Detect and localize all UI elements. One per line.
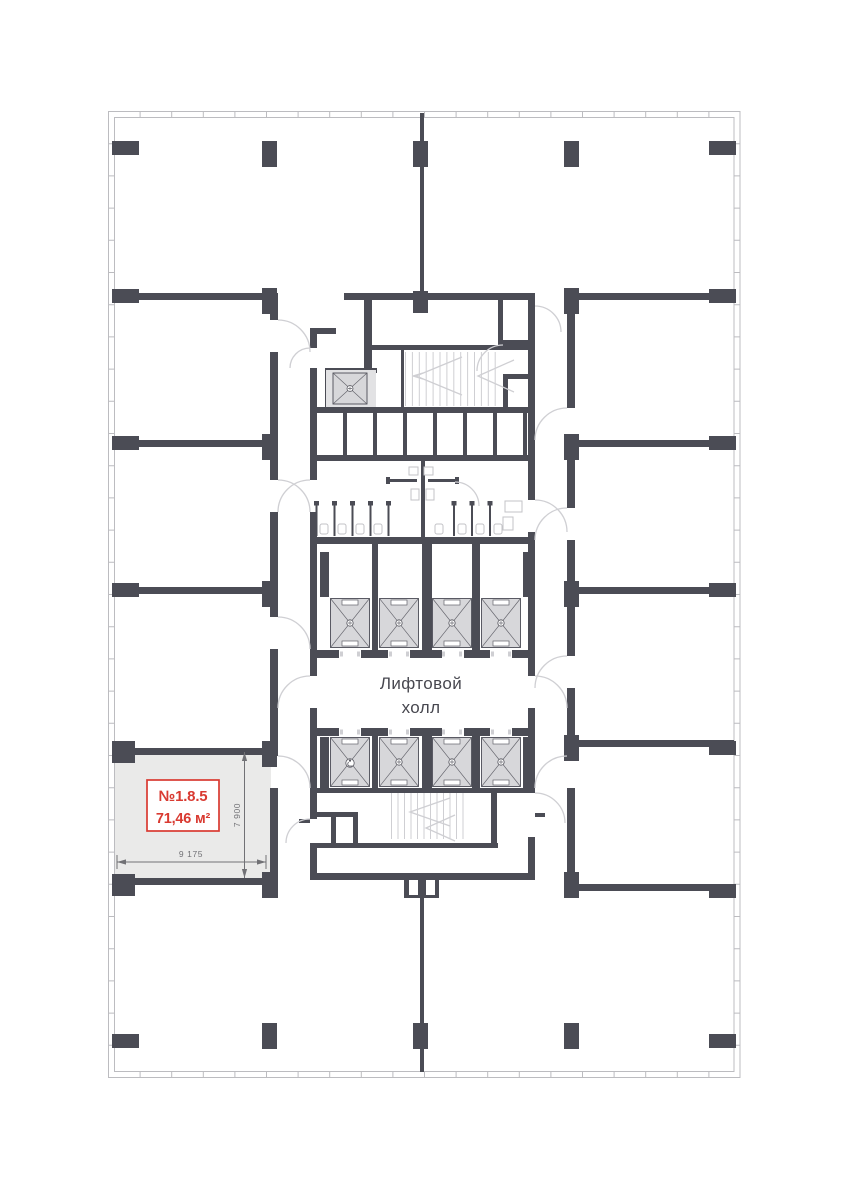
floor-plan: Лифтовой холл №1.8.5 71,46 м² 9 175 7 90… <box>0 0 848 1200</box>
dimension-width-label: 9 175 <box>179 849 203 859</box>
wheelchair-icon <box>346 759 354 767</box>
right-wing-walls <box>567 293 734 898</box>
toilet-icons <box>320 524 502 534</box>
elevator-car <box>380 738 419 787</box>
elevator-hall-line2: холл <box>402 698 441 717</box>
restroom-fixtures <box>314 467 522 536</box>
service-elevator <box>326 370 376 407</box>
elevator-hall-label: Лифтовой холл <box>380 674 462 717</box>
sink-icon <box>409 467 418 475</box>
dimension-height-label: 7 900 <box>232 803 242 827</box>
elevator-hall-line1: Лифтовой <box>380 674 462 693</box>
unit-number: №1.8.5 <box>159 788 208 805</box>
staircase-upper <box>405 357 514 395</box>
counter-icon <box>505 501 522 512</box>
staircase-lower <box>391 798 466 841</box>
elevator-car <box>380 599 419 648</box>
elevator-car <box>433 599 472 648</box>
elevator-car <box>331 599 370 648</box>
service-shaft <box>404 873 439 898</box>
service-sink-icon <box>503 517 513 530</box>
urinal-icon <box>426 489 434 500</box>
unit-area: 71,46 м² <box>156 811 211 827</box>
elevator-car <box>482 599 521 648</box>
elevator-car <box>433 738 472 787</box>
elevator-car <box>482 738 521 787</box>
sink-icon <box>424 467 433 475</box>
urinal-icon <box>411 489 419 500</box>
